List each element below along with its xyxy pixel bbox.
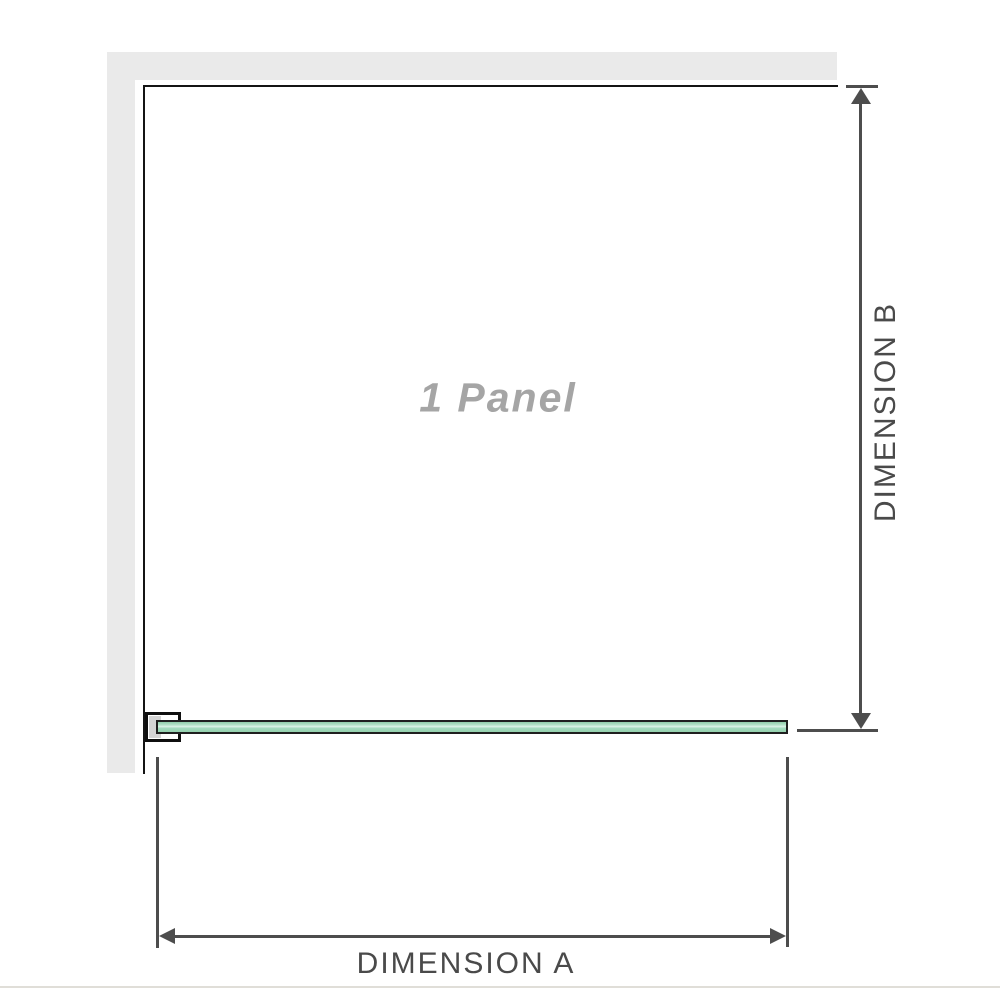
dim-a-ext-right — [786, 757, 789, 947]
dim-b-label: DIMENSION B — [869, 302, 903, 522]
dim-b-tick-bottom — [797, 729, 878, 732]
bottom-divider — [0, 986, 1000, 988]
panel-dimension-diagram: 1 Panel DIMENSION B DIMENSION A — [0, 0, 1000, 1000]
dim-a-label: DIMENSION A — [357, 947, 576, 981]
dim-a-ext-left — [156, 757, 159, 948]
panel-count-label: 1 Panel — [419, 375, 577, 422]
dim-a-arrow-right-icon — [770, 928, 786, 944]
dim-a-arrow-left-icon — [159, 928, 175, 944]
panel-top-border — [143, 85, 838, 87]
dim-b-arrow-down-icon — [851, 713, 871, 729]
wall-top — [107, 52, 837, 80]
panel-left-border — [143, 85, 145, 774]
dim-b-arrow-up-icon — [851, 88, 871, 104]
glass-panel — [156, 720, 788, 734]
dim-b-line — [859, 95, 862, 715]
dim-a-line — [168, 935, 776, 938]
wall-left — [107, 52, 135, 773]
